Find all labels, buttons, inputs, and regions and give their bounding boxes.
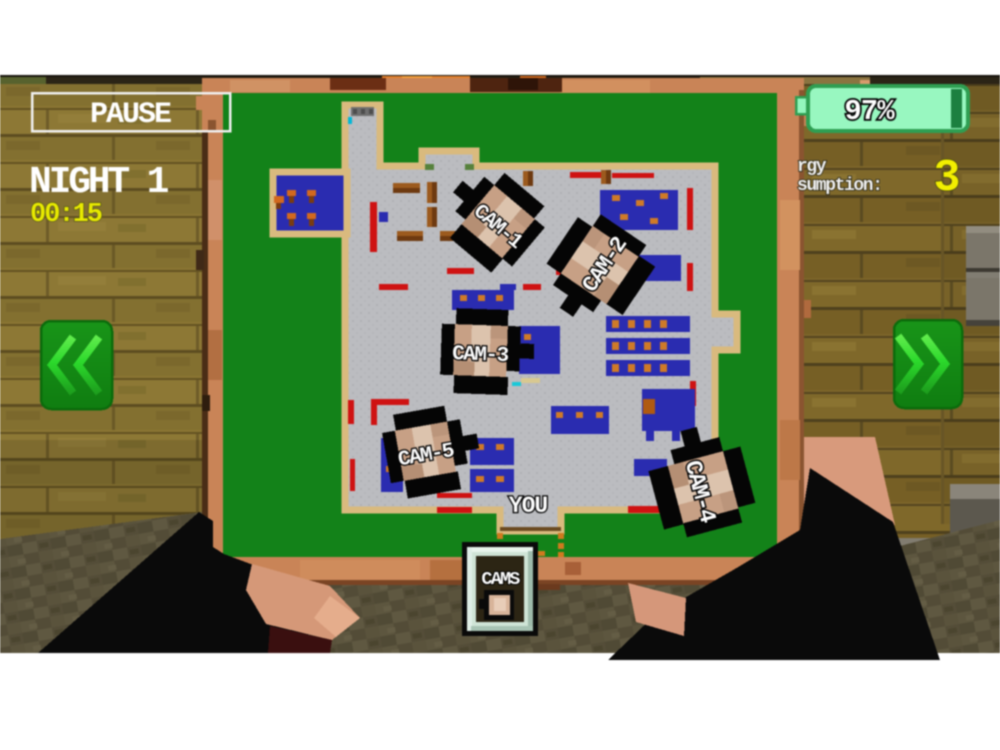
svg-text:CAMS: CAMS: [481, 569, 520, 590]
svg-text:CAM-3: CAM-3: [452, 343, 509, 368]
svg-text:00:15: 00:15: [30, 200, 102, 230]
svg-text:NIGHT 1: NIGHT 1: [29, 161, 169, 204]
svg-text:YOU: YOU: [509, 493, 548, 519]
svg-text:rgy: rgy: [797, 157, 827, 177]
svg-text:PAUSE: PAUSE: [90, 98, 171, 132]
svg-text:97%: 97%: [844, 95, 895, 128]
svg-text:sumption:: sumption:: [797, 176, 882, 196]
svg-text:3: 3: [933, 153, 960, 204]
